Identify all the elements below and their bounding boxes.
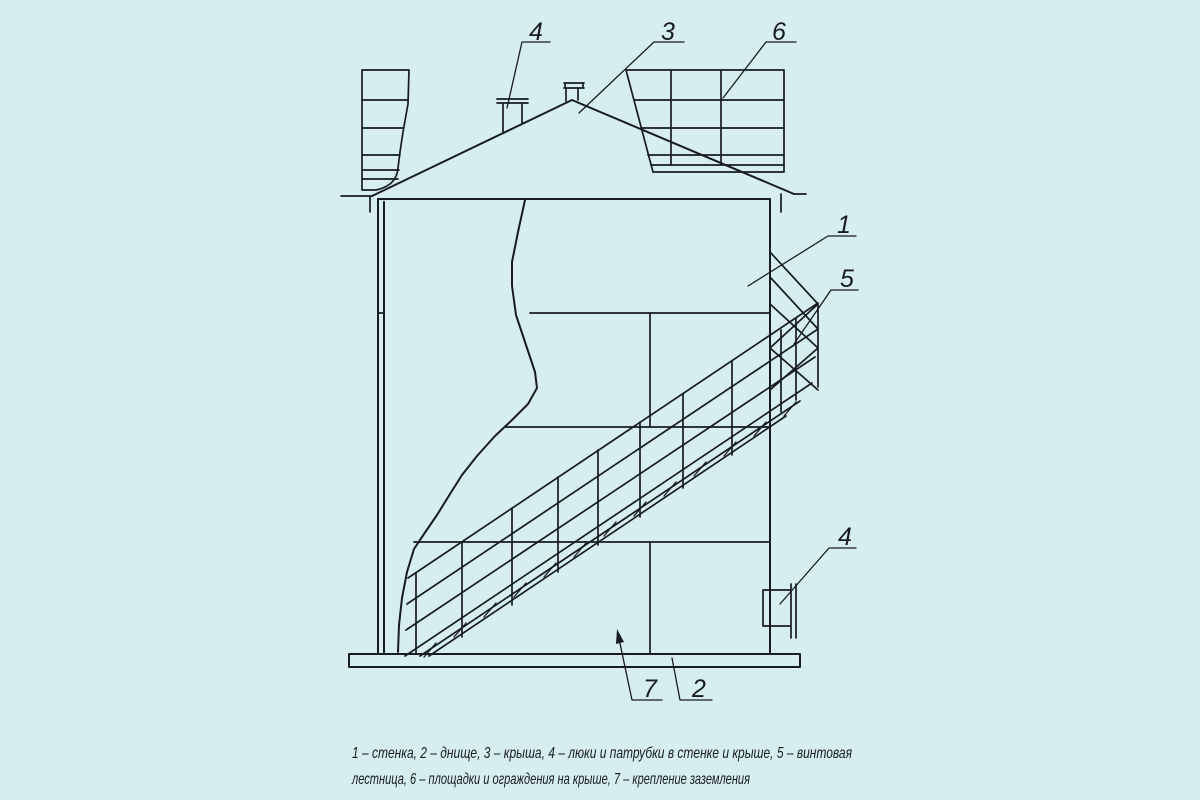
shell-break-line [398, 200, 537, 652]
callout-label-wall: 1 [837, 211, 851, 239]
callout-leader-roof-nozzle [507, 42, 550, 108]
stair-stringers [405, 383, 812, 656]
bottom-plate [349, 654, 800, 667]
callout-label-roof-platform: 6 [772, 18, 786, 46]
shell-weld-seams [378, 313, 770, 542]
right-platform-grid [634, 70, 784, 165]
roof-nozzle [497, 99, 528, 132]
callout-label-roof: 3 [661, 18, 675, 46]
grounding-arrowhead [616, 629, 624, 644]
shell-left-wall [378, 199, 384, 654]
roof-platform-left [362, 70, 409, 190]
stair-top-landing [770, 252, 818, 412]
roof-group [341, 83, 806, 212]
stair-posts [416, 361, 732, 654]
left-platform-outline [362, 70, 409, 190]
roof-eave-edges [341, 194, 806, 212]
caption: 1 – стенка, 2 – днище, 3 – крыша, 4 – лю… [351, 745, 852, 788]
callouts: 4 3 6 1 5 4 7 2 [507, 18, 858, 703]
callout-label-stair: 5 [840, 265, 854, 293]
caption-line-2: лестница, 6 – площадки и ограждения на к… [351, 771, 750, 788]
caption-line-1: 1 – стенка, 2 – днище, 3 – крыша, 4 – лю… [352, 745, 852, 762]
roof-slopes [372, 100, 794, 196]
callout-label-wall-nozzle: 4 [838, 523, 852, 551]
callout-label-bottom: 2 [691, 675, 706, 703]
callout-label-roof-nozzle: 4 [529, 18, 543, 46]
vertical-tank-technical-drawing: 4 3 6 1 5 4 7 2 1 – стенка, 2 – днище, 3… [0, 0, 1200, 800]
callout-label-grounding: 7 [643, 675, 658, 703]
callout-leader-roof [579, 42, 684, 113]
roof-apex-vent [564, 83, 584, 101]
